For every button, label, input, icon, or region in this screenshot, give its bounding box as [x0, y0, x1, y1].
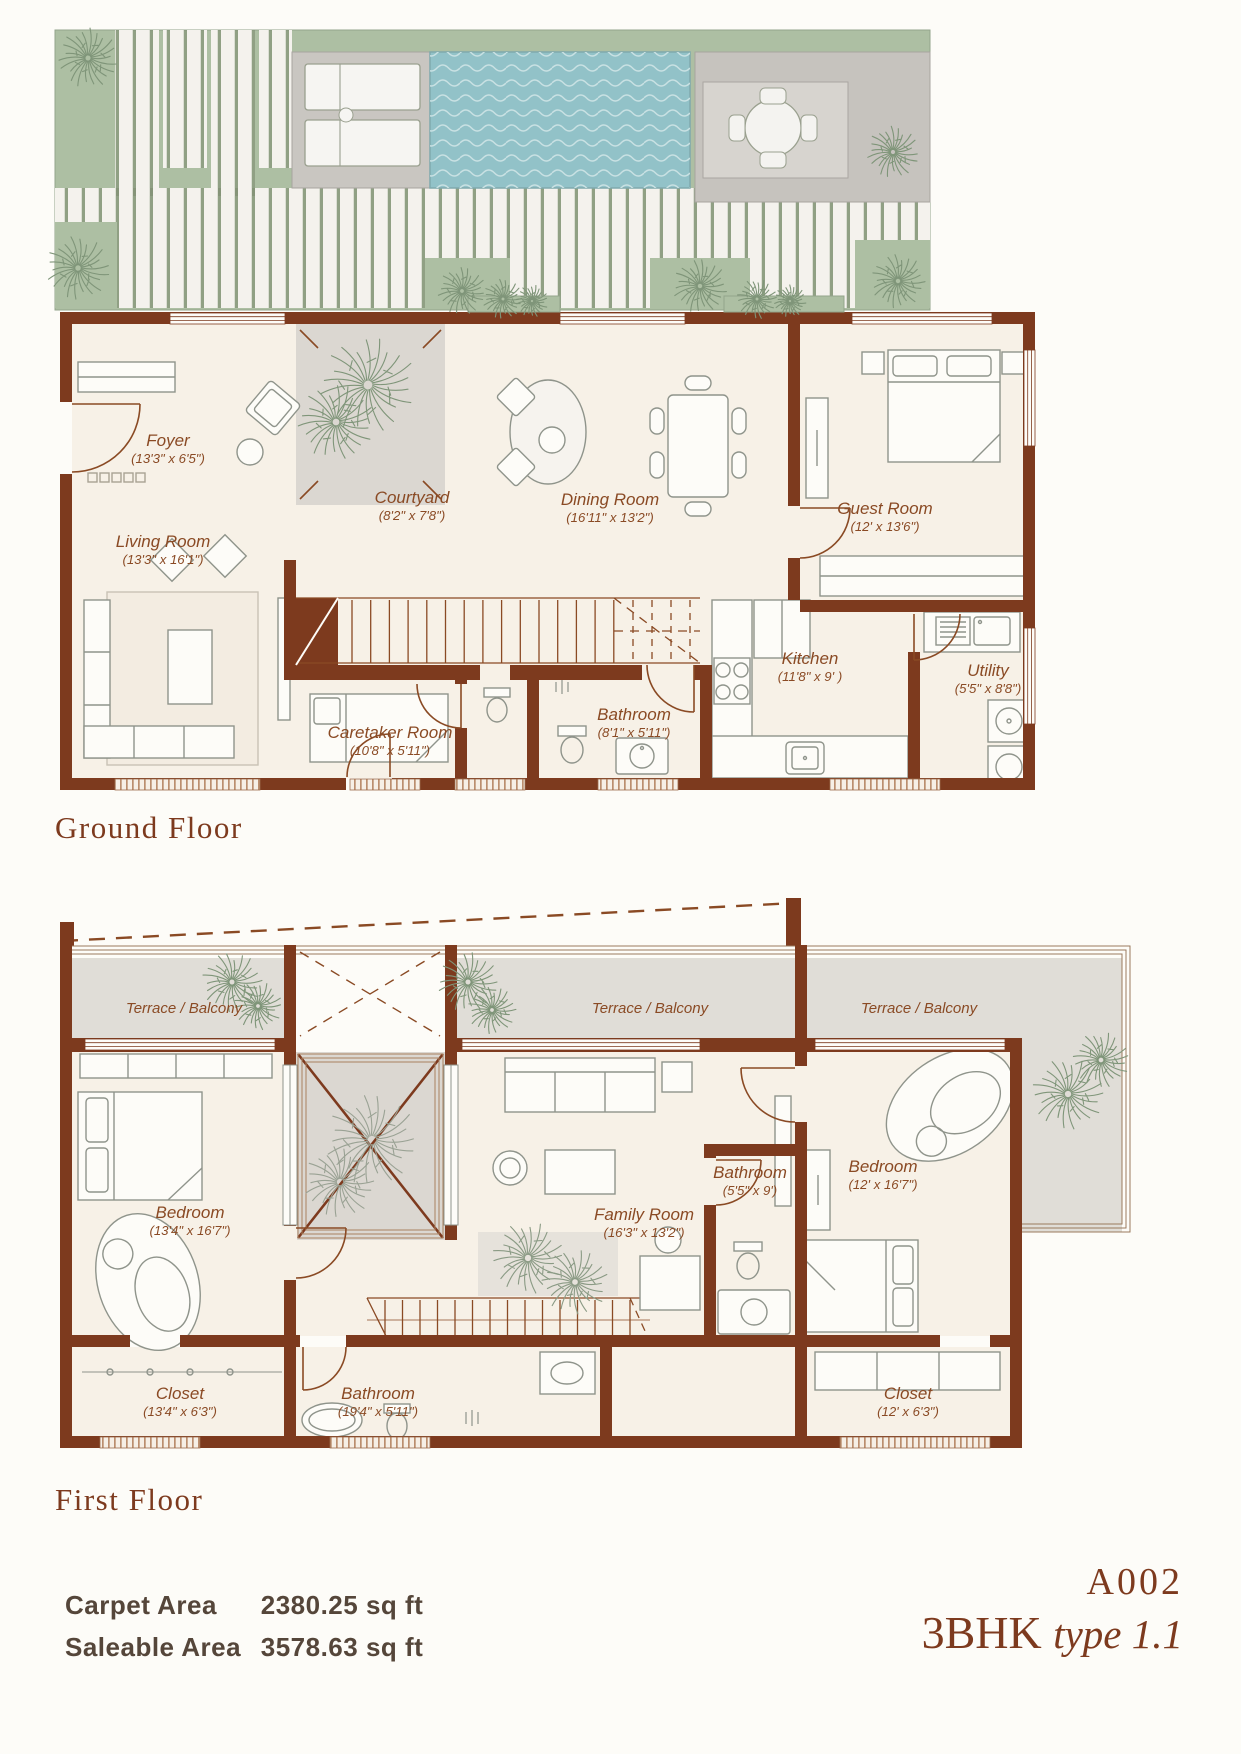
nightstand [1002, 352, 1024, 374]
desk [640, 1256, 700, 1310]
unit-bhk: 3BHK [922, 1607, 1042, 1658]
carpet-area-value: 2380.25 sq ft [261, 1590, 424, 1620]
ground-floor-title: Ground Floor [55, 810, 243, 846]
chair [650, 408, 664, 434]
sliding-door-icon [100, 1437, 200, 1448]
saleable-area-label: Saleable Area [65, 1632, 253, 1663]
nightstand [862, 352, 884, 374]
window-icon [462, 1039, 700, 1050]
coffee-table [545, 1150, 615, 1194]
terrace-floor [457, 958, 795, 1038]
room-label-gf-bathroom: Bathroom (8'1" x 5'11") [597, 704, 671, 742]
sun-lounger [305, 64, 420, 110]
room-label-foyer: Foyer (13'3" x 6'5") [131, 430, 205, 468]
sliding-door-icon [455, 779, 525, 790]
unit-type-line: 3BHK type 1.1 [922, 1606, 1183, 1659]
side-table [339, 108, 353, 122]
terrace-label-left: Terrace / Balcony [126, 1000, 242, 1017]
pillow [893, 1288, 913, 1326]
room-label-dining: Dining Room (16'11" x 13'2") [561, 489, 659, 527]
vanity [540, 1352, 595, 1394]
chair [729, 115, 745, 141]
deck-slats [115, 30, 159, 196]
lawn-patch [855, 240, 930, 308]
garden-area [55, 30, 930, 310]
room-label-bedroom2: Bedroom (12' x 16'7") [848, 1156, 917, 1194]
room-label-caretaker: Caretaker Room (10'8" x 5'11") [328, 722, 453, 760]
sliding-door-icon [330, 1437, 430, 1448]
sofa [84, 726, 234, 758]
sliding-door-icon [350, 779, 420, 790]
carpet-area-row: Carpet Area 2380.25 sq ft [65, 1590, 423, 1621]
sun-lounger [305, 120, 420, 166]
deck-slats [211, 30, 255, 196]
sliding-door-icon [115, 779, 260, 790]
deck-slats [259, 30, 292, 168]
window-icon [1024, 350, 1035, 446]
armchair [493, 1151, 527, 1185]
unit-code: A002 [1087, 1560, 1183, 1604]
outdoor-dining-patio [695, 52, 930, 202]
unit-type: type 1.1 [1053, 1611, 1183, 1657]
sofa [505, 1058, 655, 1112]
roof-projection-line [62, 903, 795, 941]
pillow [86, 1148, 108, 1192]
room-label-closet2: Closet (12' x 6'3") [877, 1383, 939, 1421]
washbasin-icon [616, 738, 668, 774]
room-label-bedroom1: Bedroom (13'4" x 16'7") [149, 1202, 230, 1240]
room-label-courtyard: Courtyard (8'2" x 7'8") [375, 487, 450, 525]
saleable-area-value: 3578.63 sq ft [261, 1632, 424, 1662]
terrace-floor [807, 958, 1122, 1040]
pillow [86, 1098, 108, 1142]
room-label-utility: Utility (5'5" x 8'8") [955, 660, 1021, 698]
window-icon [815, 1039, 1005, 1050]
room-label-guest: Guest Room (12' x 13'6") [837, 498, 932, 536]
window-icon [85, 1039, 275, 1050]
chair [650, 452, 664, 478]
room-label-closet1: Closet (13'4" x 6'3") [143, 1383, 217, 1421]
sliding-door-icon [830, 779, 940, 790]
chair [801, 115, 817, 141]
pillow [893, 1246, 913, 1284]
pillow [314, 698, 340, 724]
pillow [893, 356, 937, 376]
washbasin-icon [718, 1290, 790, 1334]
chair [760, 88, 786, 104]
room-label-big-bathroom: Bathroom (19'4" x 5'11") [338, 1383, 418, 1421]
round-table [745, 100, 801, 156]
gf-courtyard [296, 324, 445, 505]
floorplan-page: Foyer (13'3" x 6'5") Living Room (13'3" … [0, 0, 1241, 1754]
utility-counter [924, 612, 1020, 652]
room-label-family: Family Room (16'3" x 13'2") [594, 1204, 694, 1242]
nook-table [539, 427, 565, 453]
sliding-door-icon [840, 1437, 990, 1448]
dining-table [668, 395, 728, 497]
coffee-table [168, 630, 212, 704]
wall-stub [60, 922, 74, 946]
carpet-area-label: Carpet Area [65, 1590, 253, 1621]
chair [685, 376, 711, 390]
window-icon [560, 313, 685, 324]
chair [732, 452, 746, 478]
chair [685, 502, 711, 516]
side-table [662, 1062, 692, 1092]
deck-slats [163, 30, 207, 168]
window-icon [1024, 628, 1035, 724]
saleable-area-row: Saleable Area 3578.63 sq ft [65, 1632, 423, 1663]
terrace-label-mid: Terrace / Balcony [592, 1000, 708, 1017]
swimming-pool [430, 52, 690, 188]
sliding-door-icon [598, 779, 678, 790]
wall-stub [786, 898, 801, 946]
chair [760, 152, 786, 168]
first-floor-title: First Floor [55, 1482, 203, 1518]
chair [732, 408, 746, 434]
room-label-living: Living Room (13'3" x 16'1") [116, 531, 211, 569]
lounge-patio [292, 52, 430, 188]
room-label-small-bathroom: Bathroom (5'5" x 9') [713, 1162, 787, 1200]
window-icon [170, 313, 285, 324]
window-icon [852, 313, 992, 324]
room-label-kitchen: Kitchen (11'8" x 9' ) [778, 648, 842, 686]
terrace-label-right: Terrace / Balcony [861, 1000, 977, 1017]
open-to-below-marks [300, 952, 440, 1036]
pillow [947, 356, 991, 376]
pouf [237, 439, 263, 465]
